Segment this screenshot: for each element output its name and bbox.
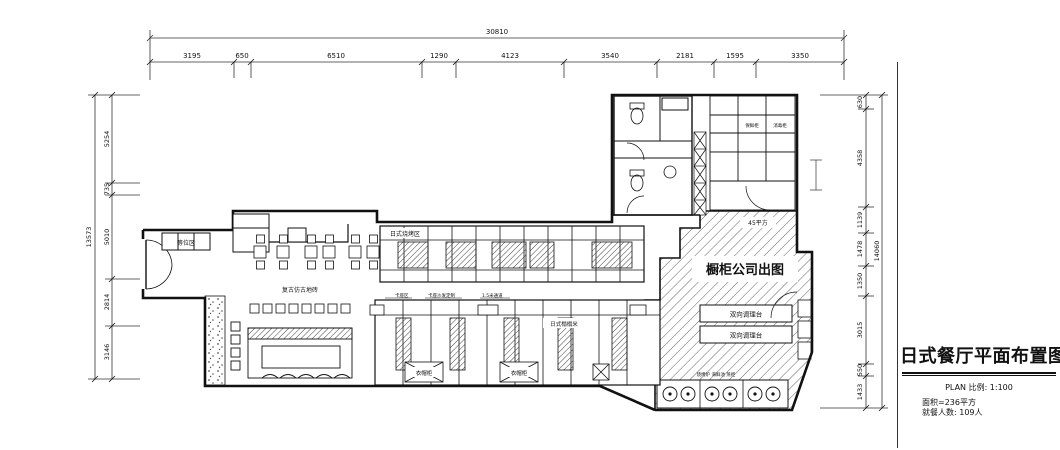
disinfect-label: 消毒柜: [773, 122, 787, 129]
sushi-bar: [231, 322, 352, 378]
titleblock-divider: [897, 62, 898, 448]
svg-text:5010: 5010: [103, 229, 111, 246]
svg-text:1290: 1290: [430, 52, 448, 60]
title-rule: [902, 372, 1056, 374]
svg-text:1139: 1139: [856, 212, 864, 229]
svg-text:4123: 4123: [501, 52, 519, 60]
kitchen-area-label: 橱柜公司出图: [706, 262, 784, 278]
svg-text:3015: 3015: [856, 322, 864, 339]
dimension-labels-top: 30810 3195 650 6510 1290 4123 3540 2181 …: [183, 28, 809, 60]
dimension-chain-left: [88, 92, 140, 382]
svg-text:3146: 3146: [103, 344, 111, 361]
waiting-area-label: 等位区: [177, 239, 195, 247]
svg-text:6510: 6510: [327, 52, 345, 60]
kitchen-size-label: 45平方: [748, 219, 768, 227]
title-block: 日式餐厅平面布置图 PLAN 比例: 1:100 面积=236平方 就餐人数: …: [900, 342, 1058, 418]
grill-row-label: 日式烧烤区: [390, 230, 420, 238]
bar-stool-row: [250, 304, 350, 313]
floor-note-label: 复古仿古地砖: [282, 286, 318, 294]
svg-text:2181: 2181: [676, 52, 694, 60]
svg-text:3195: 3195: [183, 52, 201, 60]
kitchen-side-cabinets: [798, 300, 811, 359]
diners-note: 就餐人数: 109人: [922, 408, 1058, 418]
svg-text:4358: 4358: [856, 150, 864, 167]
svg-text:1478: 1478: [856, 241, 864, 258]
drawing-sheet: 30810 3195 650 6510 1290 4123 3540 2181 …: [0, 0, 1060, 450]
tatami-label: 日式榻榻米: [550, 320, 578, 328]
dimension-labels-right: 14060 630 4358 1139 1478 1350 3015 550 1…: [856, 96, 881, 400]
svg-text:1595: 1595: [726, 52, 744, 60]
svg-text:3540: 3540: [601, 52, 619, 60]
svg-text:1433: 1433: [856, 384, 864, 401]
stone-feature-wall: [205, 296, 225, 385]
svg-text:3350: 3350: [791, 52, 809, 60]
tatami-booth-row: 日式榻榻米 衣帽柜 衣帽柜: [370, 300, 660, 385]
area-note: 面积=236平方: [922, 398, 1058, 408]
shaft-column: [694, 132, 706, 215]
svg-text:5254: 5254: [103, 131, 111, 148]
fridge-label: 保鲜柜: [745, 122, 759, 129]
scale-note: PLAN 比例: 1:100: [900, 382, 1058, 393]
prep-counter-2-label: 双向调理台: [730, 331, 763, 340]
svg-text:550: 550: [856, 364, 864, 376]
grill-booth-row: 日式烧烤区 卡座区 卡座沙发定制 1.5米通道: [380, 226, 644, 299]
svg-text:衣帽柜: 衣帽柜: [416, 369, 433, 377]
svg-text:650: 650: [235, 52, 248, 60]
prep-counter-1-label: 双向调理台: [730, 310, 763, 319]
kitchen-hatched-area: 45平方 橱柜公司出图 双向调理台 双向调理台 烧烤炉 海鲜池 蒸柜: [645, 211, 812, 410]
stove-note: 烧烤炉 海鲜池 蒸柜: [697, 371, 736, 378]
sushi-bar-stools: [231, 322, 240, 370]
svg-text:735: 735: [103, 183, 111, 195]
svg-text:1350: 1350: [856, 273, 864, 290]
dim-left-overall: 13573: [85, 227, 93, 248]
restroom-block: [614, 96, 706, 215]
svg-text:衣帽柜: 衣帽柜: [511, 369, 528, 377]
svg-text:630: 630: [856, 96, 864, 108]
drawing-title: 日式餐厅平面布置图: [900, 342, 1058, 368]
dim-top-overall: 30810: [486, 28, 508, 36]
title-rule-2: [902, 375, 1056, 376]
dim-right-overall: 14060: [873, 241, 881, 262]
svg-text:2814: 2814: [103, 294, 111, 311]
